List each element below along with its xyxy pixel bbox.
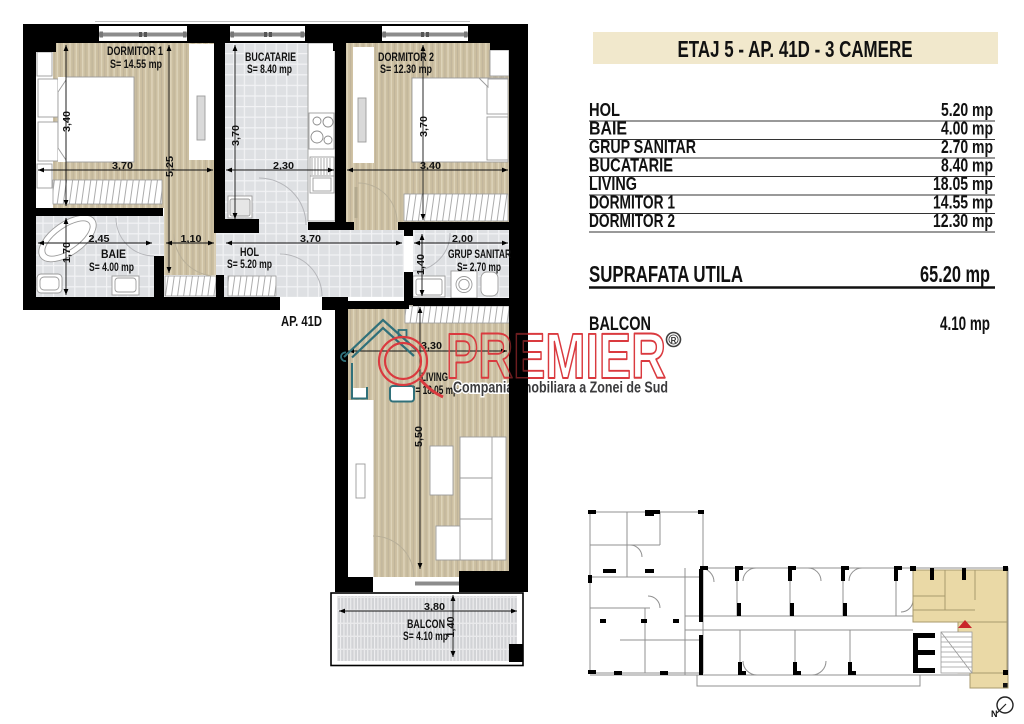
- svg-text:3,70: 3,70: [418, 116, 430, 137]
- svg-text:Compania Imobiliara a Zonei de: Compania Imobiliara a Zonei de Sud: [453, 380, 668, 397]
- svg-text:S= 8.40 mp: S= 8.40 mp: [247, 64, 292, 76]
- svg-text:N: N: [991, 709, 998, 719]
- svg-text:S= 12.30 mp: S= 12.30 mp: [380, 64, 432, 76]
- svg-text:65.20 mp: 65.20 mp: [920, 261, 990, 287]
- svg-text:3,70: 3,70: [230, 125, 242, 146]
- svg-text:2,00: 2,00: [452, 233, 473, 245]
- svg-text:4.10 mp: 4.10 mp: [940, 314, 990, 335]
- svg-text:SUPRAFATA UTILA: SUPRAFATA UTILA: [589, 261, 743, 287]
- svg-text:HOL: HOL: [240, 247, 259, 259]
- svg-text:DORMITOR 1: DORMITOR 1: [107, 46, 163, 58]
- svg-text:2,45: 2,45: [89, 233, 110, 245]
- svg-text:GRUP SANITAR: GRUP SANITAR: [448, 249, 511, 261]
- svg-text:ETAJ 5 - AP. 41D - 3 CAMERE: ETAJ 5 - AP. 41D - 3 CAMERE: [678, 36, 913, 62]
- svg-text:3,40: 3,40: [420, 160, 441, 172]
- svg-text:BALCON: BALCON: [589, 314, 651, 335]
- svg-text:3,70: 3,70: [300, 233, 321, 245]
- svg-text:3,70: 3,70: [112, 160, 133, 172]
- svg-text:S= 14.55 mp: S= 14.55 mp: [110, 59, 162, 71]
- svg-text:R: R: [671, 336, 677, 345]
- svg-text:S= 5.20 mp: S= 5.20 mp: [227, 259, 272, 271]
- svg-text:3,80: 3,80: [424, 601, 445, 613]
- svg-text:DORMITOR 2: DORMITOR 2: [378, 52, 434, 64]
- svg-text:1,10: 1,10: [181, 233, 202, 245]
- svg-text:5,25: 5,25: [164, 156, 176, 177]
- svg-text:1,40: 1,40: [415, 254, 427, 275]
- svg-text:S= 4.00 mp: S= 4.00 mp: [89, 262, 134, 274]
- svg-text:AP. 41D: AP. 41D: [281, 314, 322, 330]
- svg-text:1,70: 1,70: [61, 242, 73, 263]
- svg-text:LIVING: LIVING: [421, 372, 448, 384]
- svg-text:BALCON: BALCON: [407, 619, 445, 631]
- svg-text:S= 2.70 mp: S= 2.70 mp: [457, 262, 501, 274]
- svg-text:3,40: 3,40: [61, 111, 73, 132]
- svg-text:2,30: 2,30: [273, 160, 294, 172]
- svg-text:BUCATARIE: BUCATARIE: [245, 52, 296, 64]
- svg-text:5,50: 5,50: [413, 426, 425, 447]
- svg-text:BAIE: BAIE: [101, 249, 126, 261]
- svg-text:S= 4.10 mp: S= 4.10 mp: [403, 631, 448, 643]
